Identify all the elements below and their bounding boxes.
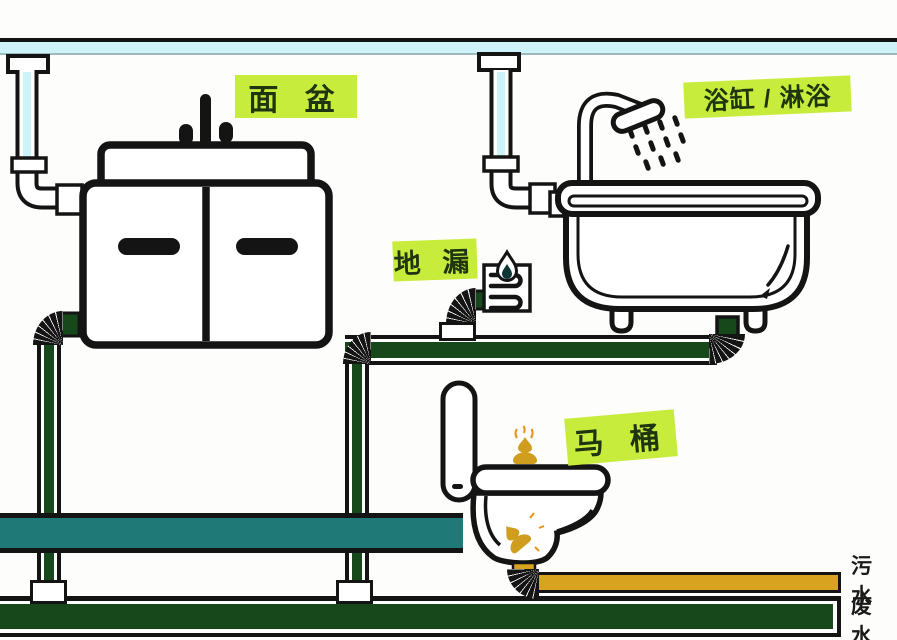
plumbing-diagram: 面 盆 浴缸 / 淋浴 地 漏 马 桶 污水 废水 [0,0,897,640]
label-bathtub-shower: 浴缸 / 淋浴 [683,75,851,118]
toilet-tank [443,383,475,500]
toilet [443,383,608,574]
toilet-seat [473,467,608,493]
label-toilet: 马 桶 [564,409,678,465]
flame-icon [516,429,518,438]
legend-sewage: 污水 [851,568,897,592]
label-floor-drain: 地 漏 [392,239,477,282]
toilet-bowl [473,493,601,563]
label-basin: 面 盆 [235,75,357,118]
poop-icon [513,426,537,464]
legend-wastewater: 废水 [851,607,897,633]
